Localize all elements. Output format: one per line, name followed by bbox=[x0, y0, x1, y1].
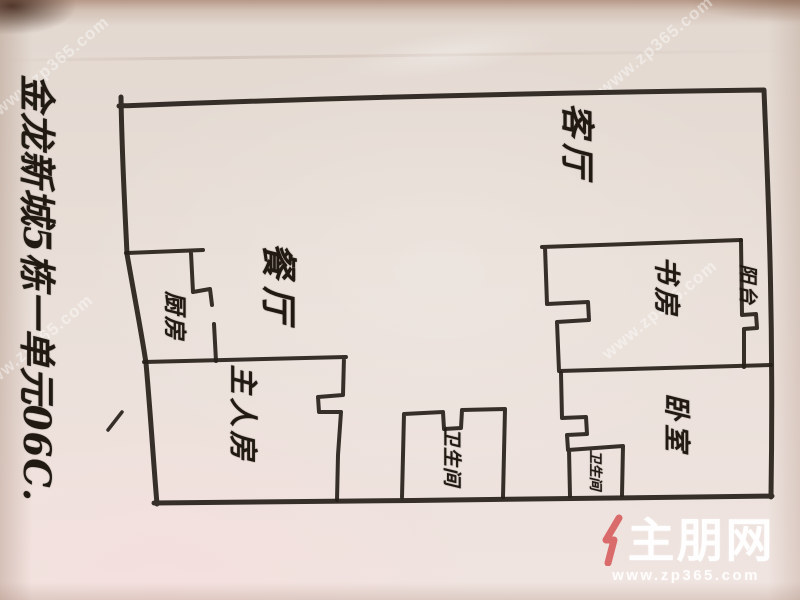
site-logo: 主朋网 bbox=[578, 512, 798, 568]
site-logo-text: 主朋网 bbox=[628, 517, 775, 564]
room-label-kitchen: 厨房 bbox=[160, 291, 194, 341]
site-url: www.zp365.com bbox=[575, 567, 797, 584]
room-label-living: 客厅 bbox=[556, 103, 605, 183]
room-label-bathroom-main: 卫生间 bbox=[440, 427, 467, 487]
room-label-bedroom: 卧室 bbox=[660, 393, 699, 455]
room-label-master-bedroom: 主人房 bbox=[224, 364, 266, 463]
room-label-balcony: 阳台 bbox=[736, 264, 763, 306]
handwritten-address: 金龙新城5栋一单元06C. bbox=[13, 74, 67, 502]
room-label-dining: 餐厅 bbox=[255, 242, 307, 330]
floorplan-photo: www.zp365.com www.zp365.com www.zp365.co… bbox=[0, 0, 800, 600]
room-label-bathroom-small: 卫生间 bbox=[587, 450, 607, 491]
room-label-study: 书房 bbox=[650, 256, 689, 318]
red-stroke-icon bbox=[602, 514, 626, 566]
